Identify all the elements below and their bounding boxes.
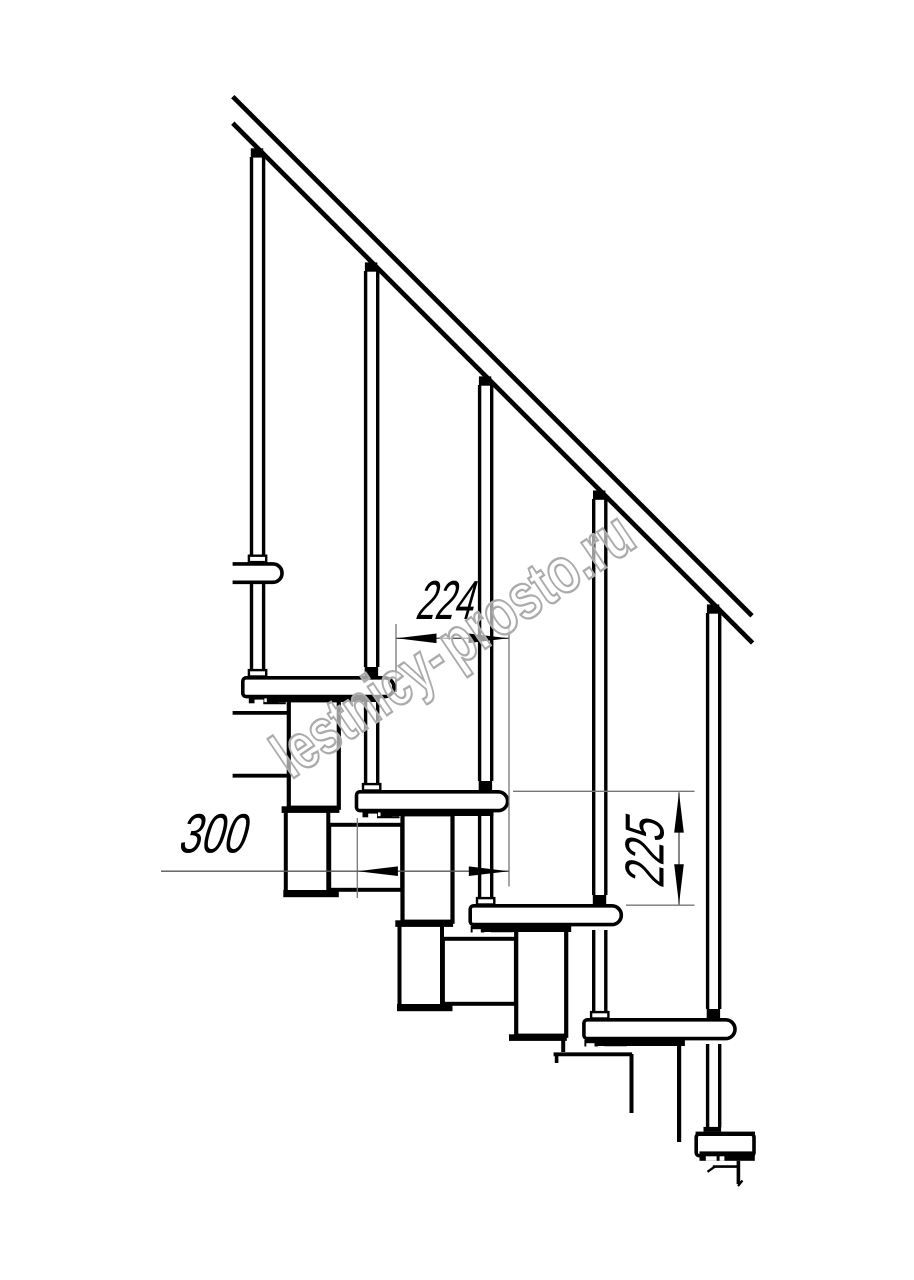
svg-text:225: 225 xyxy=(614,807,676,893)
svg-text:300: 300 xyxy=(173,802,258,865)
